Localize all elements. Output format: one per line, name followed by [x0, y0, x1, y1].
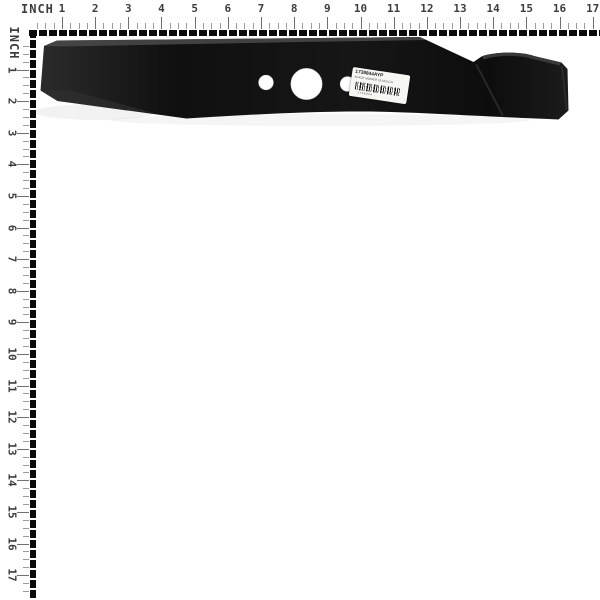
measurement-board: INCH 1234567891011121314151617 INCH 1234…	[0, 0, 600, 600]
blade-hole-left	[259, 75, 274, 90]
mower-blade-photo	[0, 0, 600, 600]
blade-center-hole	[291, 68, 322, 99]
